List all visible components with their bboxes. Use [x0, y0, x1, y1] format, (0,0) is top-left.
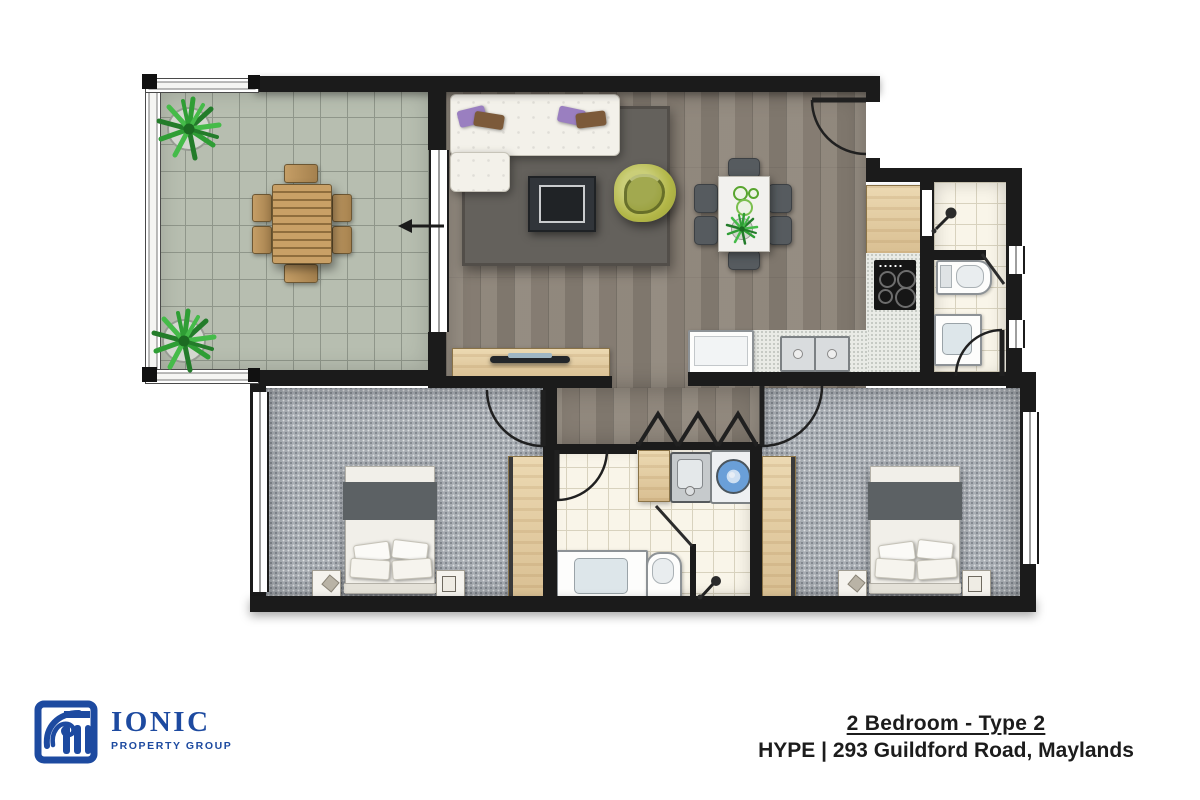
- tv-screen: [508, 353, 552, 358]
- table-decor: [968, 576, 982, 592]
- bedside-table: [962, 570, 991, 598]
- plan-subtitle: HYPE | 293 Guildford Road, Maylands: [734, 739, 1158, 763]
- outdoor-chair: [284, 164, 318, 183]
- burner: [895, 287, 916, 308]
- shower-screen: [690, 544, 696, 596]
- washer-center: [729, 472, 735, 478]
- logo-name: IONIC: [111, 708, 232, 737]
- bedside-table: [838, 570, 867, 598]
- dining-chair: [768, 216, 792, 245]
- outdoor-chair: [332, 226, 352, 254]
- bed-pillow: [391, 558, 432, 581]
- bed-base: [344, 583, 436, 593]
- table-decor: [442, 576, 456, 592]
- plan-caption: 2 Bedroom - Type 2 HYPE | 293 Guildford …: [734, 712, 1158, 763]
- bed-blanket: [868, 482, 962, 520]
- rail-post: [248, 75, 260, 89]
- dining-chair: [694, 216, 718, 245]
- dining-plate: [736, 199, 753, 216]
- ionic-column-icon: [34, 700, 98, 764]
- bed-pillow: [916, 558, 957, 581]
- sofa-chaise: [450, 152, 510, 192]
- laundry-tub: [677, 459, 703, 489]
- dining-chair: [728, 250, 760, 270]
- kitchen-sink: [780, 336, 816, 372]
- cooktop-knobs: [878, 264, 902, 268]
- bedroom-2-window: [1021, 412, 1039, 564]
- logo: IONIC PROPERTY GROUP: [34, 700, 232, 764]
- wall: [543, 388, 557, 596]
- coffee-table: [528, 176, 596, 232]
- sink-drain: [793, 349, 803, 359]
- outdoor-chair: [252, 194, 272, 222]
- wall: [428, 92, 446, 150]
- wall: [866, 168, 1022, 182]
- armchair-seat: [624, 174, 665, 214]
- dining-plate: [748, 188, 759, 199]
- toilet-bowl: [956, 265, 984, 288]
- kitchen-sink: [814, 336, 850, 372]
- laundry-door-track: [636, 442, 758, 450]
- ensuite-shower-wall: [934, 250, 986, 260]
- bedroom-1-bed: [345, 466, 435, 594]
- balcony-rail: [145, 78, 259, 93]
- ensuite-window: [1007, 320, 1025, 348]
- outdoor-table: [272, 184, 332, 264]
- wall: [250, 596, 1036, 612]
- hallway-floor: [545, 388, 762, 446]
- bed-pillow: [349, 558, 390, 581]
- dining-chair: [694, 184, 718, 213]
- floor-plan-page: IONIC PROPERTY GROUP 2 Bedroom - Type 2 …: [0, 0, 1200, 800]
- vanity-basin: [574, 558, 628, 594]
- wall: [545, 444, 637, 454]
- fridge-door: [694, 336, 748, 366]
- vanity-basin: [942, 323, 972, 355]
- balcony-sliding-door: [429, 150, 449, 332]
- kitchen-niche: [922, 190, 932, 236]
- wall: [430, 376, 612, 388]
- sink-drain: [685, 486, 695, 496]
- bedroom-2-bed: [870, 466, 960, 594]
- wardrobe-edge: [509, 457, 513, 599]
- logo-tagline: PROPERTY GROUP: [111, 740, 232, 752]
- ensuite-toilet-icon: [936, 260, 992, 295]
- wall: [688, 372, 1036, 386]
- burner: [879, 271, 896, 288]
- wardrobe-edge: [791, 457, 795, 599]
- balcony-rail: [145, 369, 259, 384]
- fridge: [688, 330, 754, 378]
- wall: [255, 76, 880, 92]
- coffee-table-top: [539, 185, 585, 223]
- bedside-table: [312, 570, 341, 598]
- table-decor: [321, 574, 339, 592]
- cooktop-icon: [874, 260, 916, 310]
- outdoor-chair: [252, 226, 272, 254]
- wall: [250, 370, 446, 386]
- plan-title: 2 Bedroom - Type 2: [734, 712, 1158, 736]
- rail-post: [142, 74, 157, 89]
- sink-drain: [827, 349, 837, 359]
- ensuite-vanity: [934, 314, 982, 366]
- laundry-sink: [670, 452, 712, 503]
- laundry-cabinet: [638, 450, 670, 502]
- table-decor: [847, 574, 865, 592]
- wall: [1006, 168, 1022, 386]
- outdoor-chair: [332, 194, 352, 222]
- burner: [878, 289, 893, 304]
- bed-pillow: [874, 558, 915, 581]
- balcony-rail: [145, 78, 161, 384]
- bed-blanket: [343, 482, 437, 520]
- bedroom-1-wardrobe: [508, 456, 545, 600]
- kitchen-pantry-cabinet: [866, 185, 924, 255]
- rail-post: [142, 367, 157, 382]
- toilet-tank: [940, 265, 952, 288]
- toilet-icon: [646, 552, 682, 601]
- logo-text: IONIC PROPERTY GROUP: [111, 708, 232, 752]
- outdoor-chair: [284, 264, 318, 283]
- bedroom-1-window: [251, 392, 269, 592]
- wall: [750, 444, 762, 596]
- ensuite-window: [1007, 246, 1025, 274]
- wall: [866, 76, 880, 102]
- bathroom-vanity: [556, 550, 648, 601]
- bed-base: [869, 583, 961, 593]
- toilet-bowl: [652, 558, 674, 584]
- dining-chair: [728, 158, 760, 178]
- dining-chair: [768, 184, 792, 213]
- rail-post: [248, 368, 260, 382]
- bedside-table: [436, 570, 465, 598]
- bedroom-2-wardrobe: [762, 456, 796, 600]
